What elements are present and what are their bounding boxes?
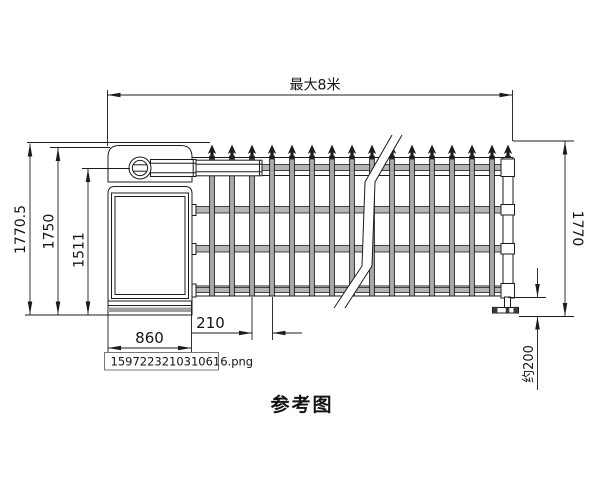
- label-bar-spacing: 210: [196, 314, 225, 332]
- label-arm-height: 1511: [72, 232, 88, 268]
- spear-finial-icon: [428, 145, 436, 159]
- fence-picket: [390, 159, 395, 296]
- boom-section-2: [196, 160, 262, 176]
- label-ground-gap: 约200: [522, 345, 537, 383]
- reference-drawing-canvas: 最大8米 1770.5 1750 1511 1770 860 210 约200 …: [0, 0, 600, 500]
- foot-anchor-left: [493, 307, 498, 314]
- spear-finial-icon: [308, 145, 316, 159]
- caption: 参考图: [270, 393, 333, 416]
- fence-picket: [250, 159, 255, 296]
- spear-finial-icon: [468, 145, 476, 159]
- foot-anchor-center: [506, 308, 510, 313]
- post-bracket-1: [501, 205, 515, 216]
- fence-picket: [490, 159, 495, 296]
- fence-picket: [430, 159, 435, 296]
- spear-finial-icon: [208, 145, 216, 159]
- spear-finial-icon: [408, 145, 416, 159]
- fence-mid-rail-2: [194, 246, 504, 253]
- spear-finial-icon: [288, 145, 296, 159]
- label-cabinet-width: 860: [135, 329, 164, 347]
- fence-picket: [410, 159, 415, 296]
- fence-mid-rail-1: [194, 207, 504, 214]
- fence-picket: [230, 159, 235, 296]
- foot-anchor-right: [514, 307, 519, 314]
- spear-finial-icon: [504, 145, 512, 159]
- label-max-width: 最大8米: [290, 78, 341, 94]
- fence-picket: [290, 159, 295, 296]
- post-leg: [505, 297, 511, 308]
- boom-section-1: [151, 160, 197, 177]
- fence-picket: [350, 159, 355, 296]
- fence-pickets: [210, 159, 495, 296]
- spear-finial-icon: [328, 145, 336, 159]
- spear-finial-icon: [248, 145, 256, 159]
- fence-picket: [210, 159, 215, 296]
- end-post: [503, 158, 513, 298]
- fence-picket: [310, 159, 315, 296]
- post-bracket-top: [501, 159, 515, 177]
- spear-finial-icon: [488, 145, 496, 159]
- fence-picket: [470, 159, 475, 296]
- technical-drawing: 最大8米 1770.5 1750 1511 1770 860 210 约200 …: [0, 0, 600, 500]
- fence-picket: [450, 159, 455, 296]
- cabinet-body: [108, 187, 192, 316]
- dimension-labels: 最大8米 1770.5 1750 1511 1770 860 210 约200: [13, 78, 585, 383]
- cabinet-plinth-band: [108, 308, 192, 313]
- fence-picket: [270, 159, 275, 296]
- label-fence-height: 1770: [569, 211, 585, 247]
- post-bracket-2: [501, 244, 515, 255]
- spear-finial-icon: [448, 145, 456, 159]
- spear-finial-icon: [268, 145, 276, 159]
- filename-box: 1597223210310616.png: [105, 353, 254, 371]
- fence-picket: [330, 159, 335, 296]
- label-total-height: 1770.5: [13, 205, 29, 254]
- spear-finial-icon: [228, 145, 236, 159]
- post-bracket-3: [501, 284, 515, 299]
- label-cabinet-height: 1750: [42, 214, 58, 250]
- spear-finial-icon: [348, 145, 356, 159]
- fence-finials: [208, 145, 512, 159]
- spear-finial-icon: [368, 145, 376, 159]
- filename-label: 1597223210310616.png: [111, 355, 254, 369]
